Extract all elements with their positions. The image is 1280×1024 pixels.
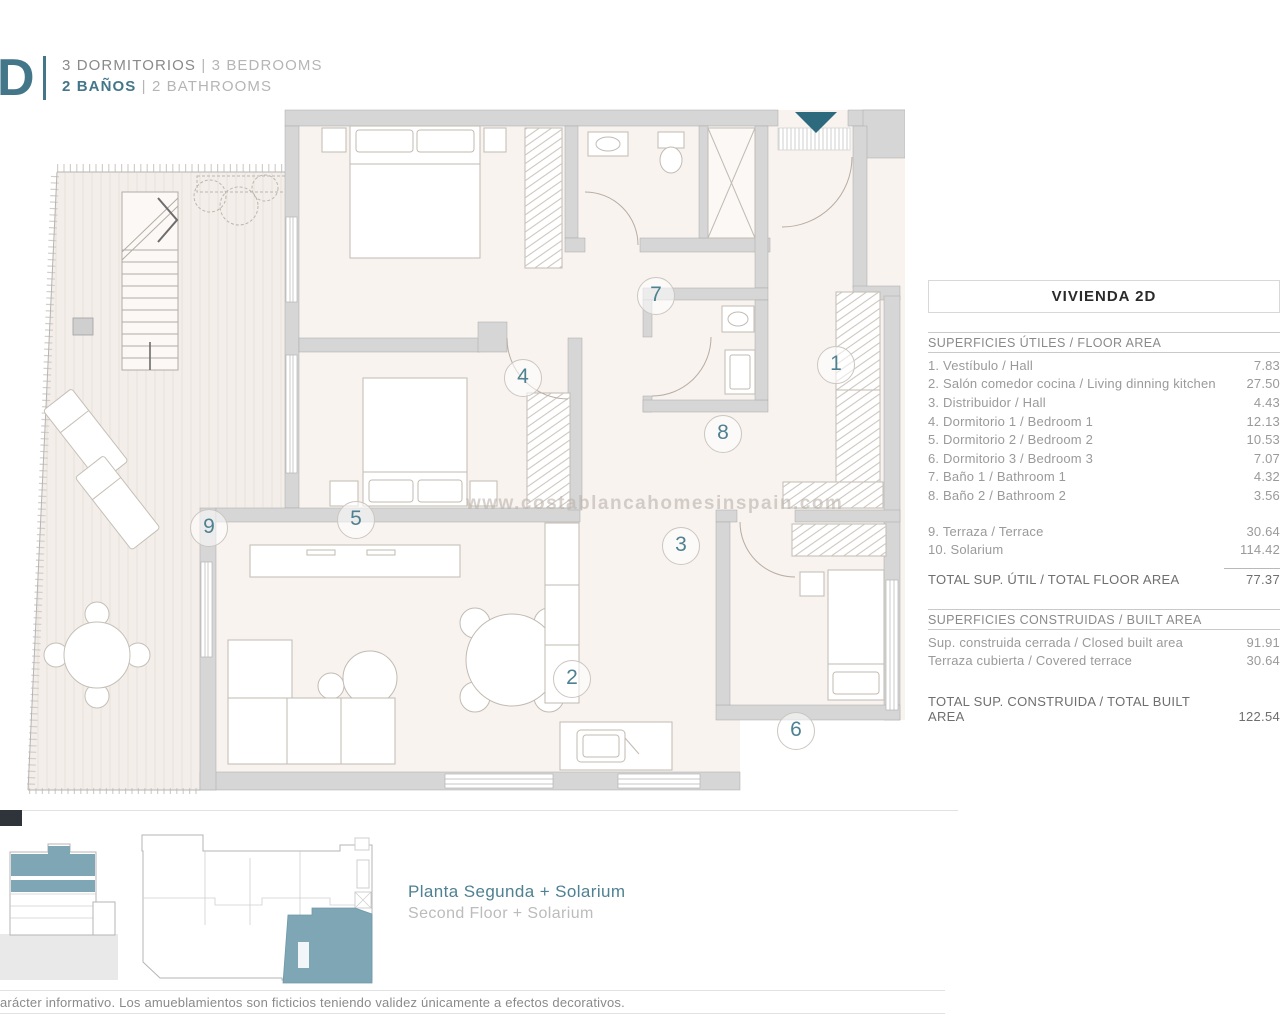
table-row: 3. Distribuidor / Hall4.43 — [928, 393, 1280, 412]
logo-divider — [43, 56, 46, 100]
room-label-distributor: 3 — [662, 527, 700, 565]
floor-plan-drawing — [25, 100, 905, 795]
key-plan-caption: Planta Segunda + Solarium Second Floor +… — [408, 881, 625, 925]
table-row: 6. Dormitorio 3 / Bedroom 37.07 — [928, 449, 1280, 468]
unit-title: VIVIENDA 2D — [928, 280, 1280, 313]
divider — [0, 1013, 945, 1014]
room-label-bedroom1: 4 — [504, 359, 542, 397]
table-row: 8. Baño 2 / Bathroom 23.56 — [928, 486, 1280, 505]
row-label: Terraza cubierta / Covered terrace — [928, 653, 1132, 668]
total-value: 122.54 — [1224, 706, 1280, 724]
building-elevation — [0, 844, 118, 980]
row-label: 10. Solarium — [928, 542, 1003, 557]
stairs — [122, 192, 178, 370]
room-label-living: 2 — [553, 660, 591, 698]
row-value: 4.32 — [1254, 469, 1280, 484]
bathroom-2-fixtures — [722, 306, 755, 394]
page-marker — [0, 810, 22, 826]
row-label: 4. Dormitorio 1 / Bedroom 1 — [928, 414, 1093, 429]
floor-title-es: Planta Segunda + Solarium — [408, 881, 625, 903]
area-table-panel: VIVIENDA 2D SUPERFICIES ÚTILES / FLOOR A… — [928, 280, 1280, 724]
table-row: 5. Dormitorio 2 / Bedroom 210.53 — [928, 430, 1280, 449]
bathrooms-en: 2 BATHROOMS — [152, 78, 272, 95]
row-label: 8. Baño 2 / Bathroom 2 — [928, 488, 1066, 503]
row-label: 1. Vestíbulo / Hall — [928, 358, 1033, 373]
row-value: 30.64 — [1246, 653, 1280, 668]
room-label-bathroom1: 7 — [637, 277, 675, 315]
row-value: 27.50 — [1246, 376, 1280, 391]
room-label-bedroom3: 6 — [777, 712, 815, 750]
row-label: 6. Dormitorio 3 / Bedroom 3 — [928, 451, 1093, 466]
row-value: 4.43 — [1254, 395, 1280, 410]
room-label-terrace: 9 — [190, 509, 228, 547]
separator: | — [142, 78, 147, 95]
bedrooms-en: 3 BEDROOMS — [212, 57, 323, 74]
disclaimer-text: arácter informativo. Los amueblamientos … — [0, 995, 950, 1010]
row-value: 7.07 — [1254, 451, 1280, 466]
floor-title-en: Second Floor + Solarium — [408, 903, 625, 925]
floor-area-section: SUPERFICIES ÚTILES / FLOOR AREA 1. Vestí… — [928, 332, 1280, 587]
bathrooms-line: 2 BAÑOS | 2 BATHROOMS — [62, 76, 323, 97]
table-row: 9. Terraza / Terrace30.64 — [928, 522, 1280, 541]
total-label: TOTAL SUP. CONSTRUIDA / TOTAL BUILT AREA — [928, 694, 1224, 724]
row-value: 12.13 — [1246, 414, 1280, 429]
table-row: 4. Dormitorio 1 / Bedroom 112.13 — [928, 412, 1280, 431]
built-area-section: SUPERFICIES CONSTRUIDAS / BUILT AREA Sup… — [928, 609, 1280, 724]
room-label-bedroom2: 5 — [337, 501, 375, 539]
bed-1 — [322, 126, 506, 258]
floor-area-total: TOTAL SUP. ÚTIL / TOTAL FLOOR AREA 77.37 — [928, 568, 1280, 587]
table-row: 1. Vestíbulo / Hall7.83 — [928, 356, 1280, 375]
total-label: TOTAL SUP. ÚTIL / TOTAL FLOOR AREA — [928, 572, 1180, 587]
key-plan — [0, 830, 390, 1021]
room-label-hall: 1 — [817, 346, 855, 384]
shaft — [708, 128, 755, 238]
row-value: 10.53 — [1246, 432, 1280, 447]
table-row: 2. Salón comedor cocina / Living dinning… — [928, 375, 1280, 394]
unit-summary: 3 DORMITORIOS | 3 BEDROOMS 2 BAÑOS | 2 B… — [62, 55, 323, 97]
table-row: 7. Baño 1 / Bathroom 14.32 — [928, 468, 1280, 487]
row-label: Sup. construida cerrada / Closed built a… — [928, 635, 1183, 650]
row-label: 9. Terraza / Terrace — [928, 524, 1044, 539]
floor-plan: 1 2 3 4 5 6 7 8 9 — [25, 100, 905, 795]
highlighted-unit — [283, 908, 372, 983]
row-label: 7. Baño 1 / Bathroom 1 — [928, 469, 1066, 484]
row-label: 2. Salón comedor cocina / Living dinning… — [928, 376, 1216, 391]
table-row: Sup. construida cerrada / Closed built a… — [928, 633, 1280, 652]
row-label: 5. Dormitorio 2 / Bedroom 2 — [928, 432, 1093, 447]
total-value: 77.37 — [1224, 568, 1280, 587]
floor-area-header: SUPERFICIES ÚTILES / FLOOR AREA — [928, 332, 1280, 353]
bathrooms-es: 2 BAÑOS — [62, 78, 136, 95]
table-row: 10. Solarium114.42 — [928, 540, 1280, 559]
built-area-total: TOTAL SUP. CONSTRUIDA / TOTAL BUILT AREA… — [928, 694, 1280, 724]
separator: | — [201, 57, 206, 74]
table-row: Terraza cubierta / Covered terrace30.64 — [928, 652, 1280, 671]
built-area-header: SUPERFICIES CONSTRUIDAS / BUILT AREA — [928, 609, 1280, 630]
row-value: 91.91 — [1246, 635, 1280, 650]
brand-logo: D — [0, 48, 35, 108]
watermark: www.costablancahomesinspain.com — [466, 493, 811, 515]
key-plan-drawing — [0, 830, 390, 1016]
bedrooms-es: 3 DORMITORIOS — [62, 57, 196, 74]
bedrooms-line: 3 DORMITORIOS | 3 BEDROOMS — [62, 55, 323, 76]
room-label-bathroom2: 8 — [704, 415, 742, 453]
row-value: 3.56 — [1254, 488, 1280, 503]
row-value: 7.83 — [1254, 358, 1280, 373]
row-value: 114.42 — [1240, 542, 1280, 557]
row-value: 30.64 — [1246, 524, 1280, 539]
divider — [0, 990, 945, 991]
divider — [0, 810, 958, 811]
row-label: 3. Distribuidor / Hall — [928, 395, 1046, 410]
column — [73, 318, 93, 335]
